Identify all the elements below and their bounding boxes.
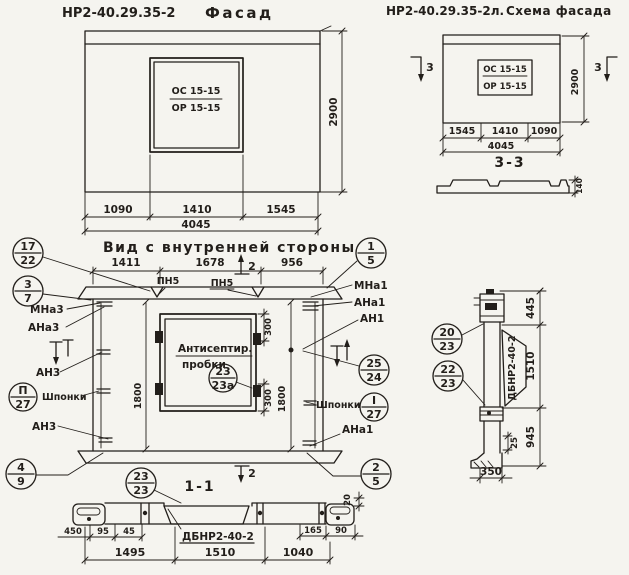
dim-20-lines: [354, 492, 364, 511]
window-note-line1: Антисептир.: [178, 343, 252, 355]
callout-I-27: I 27: [360, 393, 388, 421]
an1-leader: [303, 320, 358, 349]
dim-1510-side: 1510: [525, 351, 537, 380]
dim-300-bot: 300: [264, 389, 274, 407]
callout-bot: 27: [366, 408, 381, 421]
schema-drawing: НР2-40.29.35-2л. Схема фасада ОС 15-15 О…: [386, 4, 617, 197]
schema-dim-total: 4045: [488, 141, 514, 152]
ana1-top-leader: [313, 302, 352, 306]
schema-dim-2900: 2900: [570, 68, 581, 95]
anchor-dot: [87, 517, 91, 521]
cut2-top-label: 2: [248, 260, 256, 273]
callout-top: 4: [17, 461, 25, 474]
callout-top: 23: [215, 365, 230, 378]
inner-view-drawing: Вид с внутренней стороны Антисептир. про…: [6, 238, 391, 503]
callout-bot: 22: [20, 254, 35, 267]
flange-notches: [151, 287, 264, 297]
callout-bot: 23а: [212, 379, 235, 392]
inner-dim-1411: 1411: [111, 257, 140, 269]
right-cap-loop: [330, 507, 350, 514]
ana3-leader: [66, 307, 104, 327]
technical-drawing: НР2-40.29.35-2 Фасад ОС 15-15 ОР 15-15 1…: [0, 0, 629, 575]
label-ana1-bot: АНа1: [342, 424, 373, 436]
facade-title-code: НР2-40.29.35-2: [62, 6, 175, 21]
left-1800-dim: [143, 299, 149, 452]
right-1800-dim: [288, 299, 294, 452]
panel-mark-label: ДБНР2-40-2: [182, 531, 254, 543]
mark-leader: [168, 509, 181, 529]
callout-bot: 5: [367, 254, 375, 267]
dim-25: 25: [510, 437, 520, 449]
schema-cut-left-arrow: [418, 74, 424, 82]
label-ana3: АНа3: [28, 322, 59, 334]
callout-leader: [36, 453, 103, 475]
dim-445: 445: [525, 297, 537, 319]
dim-165: 165: [304, 526, 322, 536]
callout-2-5: 2 5: [307, 453, 391, 489]
callout-bot: 23: [440, 377, 455, 390]
side-top-blob: [485, 303, 497, 310]
inner-dim-1678: 1678: [195, 257, 224, 269]
section-3-3-title: 3-3: [494, 155, 525, 171]
callout-top: 2: [372, 461, 380, 474]
cut2-bottom-label: 2: [248, 467, 256, 480]
callout-leader: [307, 453, 361, 476]
facade-window-mark-top: ОС 15-15: [172, 86, 221, 97]
left-cap-loop: [77, 508, 100, 515]
side-top-cap: [486, 289, 494, 294]
window-key-tab: [253, 333, 261, 345]
middle-slab: [164, 506, 249, 524]
anchor-dot: [320, 511, 324, 515]
dim-300-top: 300: [264, 318, 274, 336]
pn5-label-2: ПН5: [211, 278, 234, 289]
callout-II-27: П 27: [9, 383, 37, 411]
callout-top: П: [18, 384, 27, 397]
callout-bot: 23: [439, 340, 454, 353]
callout-leader: [327, 261, 357, 288]
schema-cut-right-label: 3: [594, 61, 602, 74]
window-key-tab: [155, 383, 163, 395]
dim-1510: 1510: [205, 546, 236, 559]
window-key-tab: [253, 385, 261, 397]
anchor-dot: [258, 511, 262, 515]
callout-23-23: 23 23: [126, 468, 181, 503]
callout-top: 1: [367, 240, 375, 253]
dim-1800-right: 1800: [277, 385, 288, 412]
panel-inner-faces: [101, 303, 315, 448]
schema-dim-1545: 1545: [449, 126, 475, 137]
schema-window-mark-bottom: ОР 15-15: [483, 82, 527, 92]
callout-bot: 9: [17, 475, 25, 488]
dim-1800-left: 1800: [133, 382, 144, 409]
an3b-leader: [58, 426, 108, 439]
callout-3-7: 3 7: [13, 276, 91, 306]
facade-dim-1090: 1090: [103, 204, 132, 216]
dim-1040: 1040: [283, 546, 314, 559]
callout-leader: [43, 294, 91, 300]
callout-bot: 5: [372, 475, 380, 488]
dim-95: 95: [97, 527, 109, 537]
callout-top: 23: [133, 470, 148, 483]
callout-bot: 24: [366, 371, 382, 384]
dim-350: 350: [480, 466, 502, 478]
schema-title-code: НР2-40.29.35-2л.: [386, 4, 504, 18]
inner-top-ext: [93, 267, 323, 284]
anchor-dot: [143, 511, 147, 515]
anchor-dot: [336, 516, 340, 520]
callout-leader: [462, 324, 483, 335]
callout-23-23a: 23 23а: [209, 364, 252, 392]
callout-bot: 27: [15, 398, 30, 411]
label-an3-a: АН3: [36, 367, 60, 379]
schema-title-word: Схема фасада: [506, 4, 612, 18]
side-panel-mark: ДБНР2-40-2: [507, 336, 518, 401]
ana1-bot-leader: [310, 434, 340, 446]
side-joint-lines: [480, 411, 503, 415]
callout-leader: [154, 490, 181, 503]
drawing-sheet: НР2-40.29.35-2 Фасад ОС 15-15 ОР 15-15 1…: [0, 0, 629, 575]
anchor-dot: [487, 411, 491, 415]
callout-top: I: [372, 394, 376, 407]
left-edge-marks: [97, 302, 112, 442]
callout-bot: 23: [133, 484, 148, 497]
side-bar-upper: [484, 322, 500, 407]
facade-dim-1410: 1410: [182, 204, 211, 216]
callout-top: 17: [20, 240, 35, 253]
inner-view-title: Вид с внутренней стороны: [103, 240, 356, 256]
side-bar-lower: [484, 421, 500, 453]
side-section-drawing: ДБНР2-40-2 20 23 22 23 25 350 445 1510 9…: [432, 288, 546, 483]
pn5-leader-2: [210, 289, 256, 296]
schema-cut-right-arrow: [604, 74, 610, 82]
facade-title-word: Фасад: [205, 4, 274, 22]
callout-leader: [303, 351, 359, 366]
label-ana1-top: АНа1: [354, 297, 385, 309]
schema-cut-left-label: 3: [426, 61, 434, 74]
cut1-left-arrow: [53, 357, 59, 365]
callout-20-23: 20 23: [432, 324, 483, 354]
label-an3-b: АН3: [32, 421, 56, 433]
callout-top: 25: [366, 357, 381, 370]
panel-sides: [93, 299, 323, 451]
dim-90: 90: [335, 526, 347, 536]
window-key-tab: [155, 331, 163, 343]
dim-450: 450: [64, 527, 82, 537]
section-3-3-profile: [437, 180, 569, 193]
panel-bottom-flange: [78, 451, 342, 463]
schema-window-mark-top: ОС 15-15: [483, 65, 527, 75]
schema-dim-1410: 1410: [492, 126, 519, 137]
dim-1495: 1495: [115, 546, 146, 559]
facade-window-mark-bottom: ОР 15-15: [172, 103, 221, 114]
inner-dim-956: 956: [281, 257, 303, 269]
section-1-1-title: 1-1: [184, 479, 215, 495]
shponki-right-leader: [306, 402, 314, 404]
callout-top: 22: [440, 363, 455, 376]
label-an1: АН1: [360, 313, 384, 325]
pn5-label-1: ПН5: [157, 276, 180, 287]
facade-corner-tick: [320, 26, 331, 31]
dim-45: 45: [123, 527, 135, 537]
facade-dim-2900: 2900: [328, 97, 340, 126]
callout-top: 20: [439, 326, 455, 339]
facade-dim-total: 4045: [181, 219, 210, 231]
right-edge-marks: [303, 302, 318, 445]
label-shponki-right: Шпонки: [316, 400, 361, 411]
section-1-1-drawing: ДБНР2-40-2 450 95 45 165 90 20 1495 1510…: [58, 492, 364, 564]
callout-leader: [236, 382, 252, 388]
callout-22-23: 22 23: [433, 361, 485, 405]
cut1-right-arrow-up: [344, 339, 350, 347]
schema-outline: [443, 35, 560, 123]
label-mna1: МНа1: [354, 280, 388, 292]
facade-dim-1545: 1545: [266, 204, 295, 216]
side-top-ext: [500, 288, 546, 294]
cut2-bottom-arrow: [238, 475, 244, 483]
schema-dim-1090: 1090: [531, 126, 558, 137]
callout-top: 3: [24, 278, 32, 291]
mna3-leader: [67, 303, 100, 309]
side-joint-block: [480, 407, 503, 421]
facade-drawing: НР2-40.29.35-2 Фасад ОС 15-15 ОР 15-15 1…: [62, 4, 347, 235]
label-mna3: МНа3: [30, 304, 64, 316]
label-shponki-left: Шпонки: [42, 392, 87, 403]
callout-25-24: 25 24: [303, 351, 389, 385]
callout-leader: [463, 380, 485, 405]
callout-4-9: 4 9: [6, 453, 103, 489]
profile-dim-140: 140: [575, 178, 584, 194]
dim-20: 20: [343, 494, 353, 506]
dim-945: 945: [525, 426, 537, 448]
an3a-leader: [60, 352, 102, 372]
